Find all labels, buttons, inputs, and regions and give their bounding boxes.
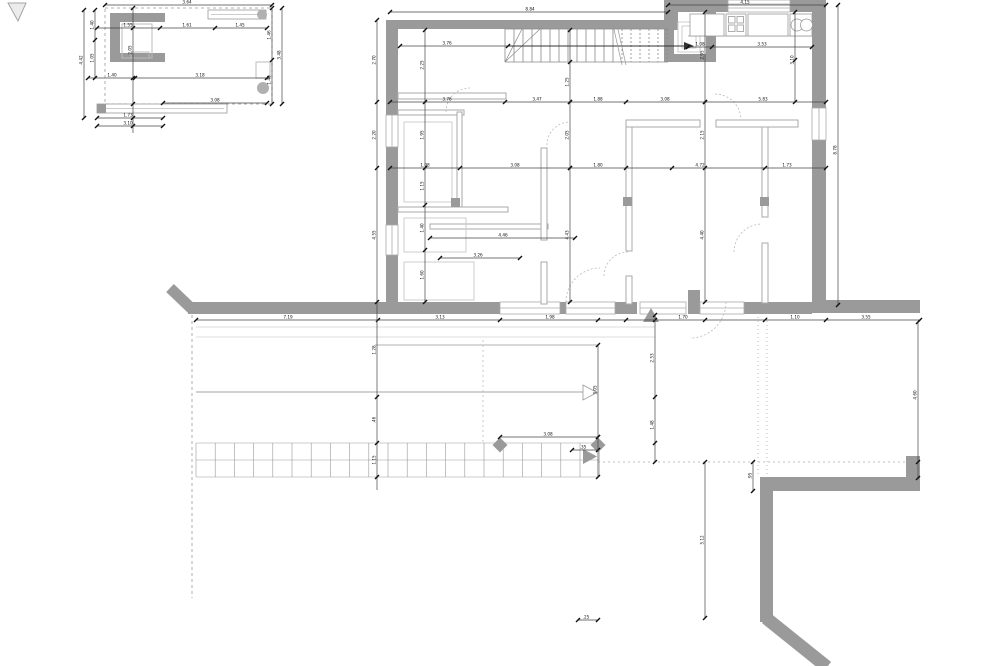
svg-text:1.05: 1.05 (89, 53, 94, 63)
svg-text:1.46: 1.46 (266, 30, 271, 40)
svg-text:8.78: 8.78 (832, 145, 837, 155)
svg-text:4.46: 4.46 (498, 232, 508, 237)
svg-text:1.40: 1.40 (107, 72, 117, 77)
svg-text:7.19: 7.19 (283, 314, 293, 319)
svg-text:.46: .46 (371, 416, 376, 423)
svg-text:3.08: 3.08 (510, 162, 520, 167)
inset-walls (110, 13, 165, 62)
svg-text:5.12: 5.12 (699, 535, 704, 545)
svg-text:3.26: 3.26 (473, 252, 483, 257)
window (566, 302, 615, 314)
window (700, 302, 744, 314)
svg-text:3.47: 3.47 (532, 96, 542, 101)
svg-text:1.60: 1.60 (419, 270, 424, 280)
svg-text:3.55: 3.55 (861, 314, 871, 319)
svg-text:5.83: 5.83 (758, 96, 768, 101)
svg-text:1.73: 1.73 (782, 162, 792, 167)
svg-text:2.70: 2.70 (371, 55, 376, 65)
svg-text:2.05: 2.05 (564, 130, 569, 140)
stair-treads (505, 29, 667, 62)
svg-text:2.05: 2.05 (127, 45, 132, 55)
gray-arrow-icon (583, 449, 597, 464)
column-diamond (493, 438, 508, 453)
svg-text:3.53: 3.53 (757, 41, 767, 46)
window (812, 108, 826, 140)
svg-text:1.45: 1.45 (235, 22, 245, 27)
svg-text:2.95: 2.95 (699, 50, 704, 60)
svg-text:3.10: 3.10 (123, 120, 133, 125)
svg-text:1.40: 1.40 (89, 20, 94, 30)
svg-text:8.84: 8.84 (525, 6, 535, 11)
svg-text:1.40: 1.40 (266, 75, 271, 85)
svg-text:3.10: 3.10 (789, 55, 794, 65)
svg-text:1.15: 1.15 (371, 455, 376, 465)
svg-text:2.20: 2.20 (371, 130, 376, 140)
svg-text:4.72: 4.72 (695, 162, 705, 167)
view-cone-marker (8, 3, 26, 21)
svg-text:1.25: 1.25 (564, 77, 569, 87)
svg-text:1.15: 1.15 (419, 181, 424, 191)
window (500, 302, 560, 314)
kitchen-fixtures (688, 14, 813, 36)
svg-text:.35: .35 (580, 444, 587, 449)
svg-text:3.08: 3.08 (543, 431, 553, 436)
svg-text:1.08: 1.08 (695, 41, 705, 46)
svg-text:1.95: 1.95 (419, 130, 424, 140)
svg-text:3.08: 3.08 (660, 96, 670, 101)
svg-text:1.55: 1.55 (123, 22, 133, 27)
svg-text:1.28: 1.28 (371, 345, 376, 355)
svg-text:1.73: 1.73 (123, 112, 133, 117)
svg-text:1.10: 1.10 (790, 314, 800, 319)
svg-text:1.70: 1.70 (678, 314, 688, 319)
svg-text:1.40: 1.40 (419, 223, 424, 233)
window (728, 0, 790, 12)
floor-plan-image: 8.844.153.761.083.533.763.471.883.085.83… (0, 0, 1000, 666)
svg-text:3.13: 3.13 (435, 314, 445, 319)
svg-text:2.15: 2.15 (699, 130, 704, 140)
svg-text:3.08: 3.08 (210, 97, 220, 102)
floor-plan-canvas: 8.844.153.761.083.533.763.471.883.085.83… (0, 0, 1000, 666)
window (640, 302, 686, 314)
svg-text:3.64: 3.64 (182, 0, 192, 4)
svg-text:2.25: 2.25 (419, 60, 424, 70)
window (386, 225, 398, 255)
svg-text:1.48: 1.48 (649, 420, 654, 430)
svg-text:1.80: 1.80 (593, 162, 603, 167)
inset-radiator-bottom (97, 104, 227, 113)
sink-icon (790, 14, 813, 36)
svg-text:4.60: 4.60 (912, 390, 917, 400)
door-swing-arcs (446, 88, 762, 338)
svg-text:3.76: 3.76 (442, 40, 452, 45)
svg-text:1.88: 1.88 (593, 96, 603, 101)
svg-text:.25: .25 (583, 614, 590, 619)
terrace-tile-grid (196, 443, 599, 477)
svg-text:2.53: 2.53 (649, 353, 654, 363)
window (386, 115, 398, 147)
svg-text:4.43: 4.43 (564, 230, 569, 240)
svg-text:4.55: 4.55 (371, 230, 376, 240)
stove-icon (726, 14, 746, 36)
svg-text:3.18: 3.18 (195, 72, 205, 77)
svg-text:1.98: 1.98 (545, 314, 555, 319)
svg-text:3.05: 3.05 (592, 385, 597, 395)
inset-radiator-top (208, 10, 267, 20)
svg-text:3.76: 3.76 (442, 96, 452, 101)
svg-text:.95: .95 (747, 472, 752, 479)
svg-text:3.48: 3.48 (276, 50, 281, 60)
svg-text:4.15: 4.15 (740, 0, 750, 4)
reference-lines (192, 313, 906, 598)
svg-text:1.61: 1.61 (182, 22, 192, 27)
svg-text:4.40: 4.40 (699, 230, 704, 240)
exterior-walls (170, 0, 920, 666)
svg-text:4.42: 4.42 (78, 55, 83, 65)
